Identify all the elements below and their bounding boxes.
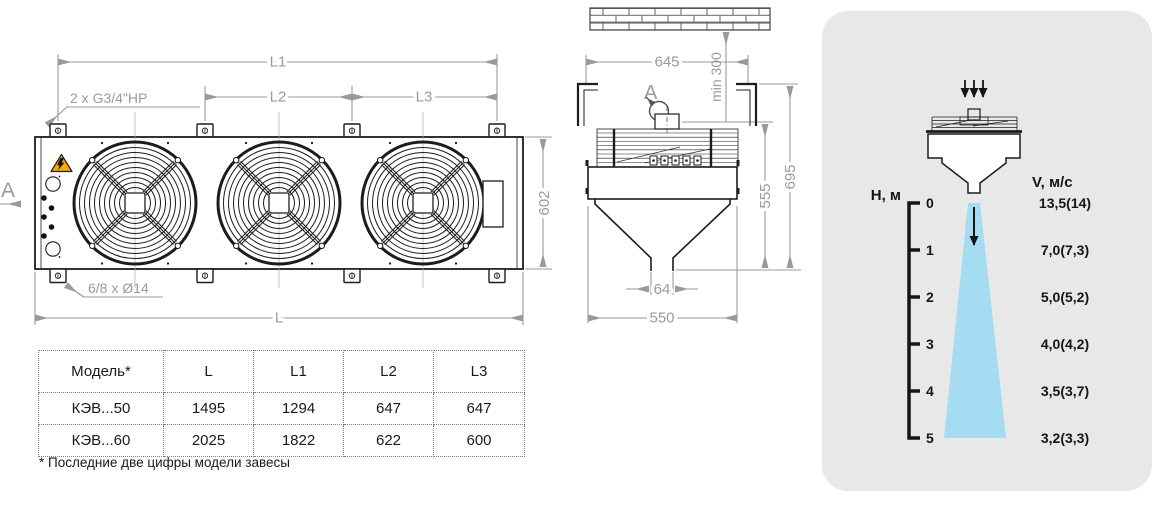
col-header-l3: L3 [434,351,525,393]
col-header-model: Модель* [39,351,164,393]
table-footnote: * Последние две цифры модели завесы [39,455,290,470]
dim-label-695: 695 [782,164,799,189]
front-view-drawing: L1 L2 L3 L 602 2 x G3/4"HP 6/8 x Ø14 A [0,0,570,345]
dim-label-min300: min 300 [708,52,724,102]
l2-cell: 647 [344,393,434,425]
l1-cell: 1822 [254,425,344,457]
h-tick-1: 1 [926,242,934,258]
section-a-label: A [1,179,15,202]
heat-exchanger [597,129,738,167]
h-tick-3: 3 [926,336,934,352]
dim-label-645: 645 [654,54,679,71]
velocity-0: 13,5(14) [1039,195,1091,211]
intake-arrows-icon [965,80,983,97]
table-header-row: Модель* L L1 L2 L3 [39,351,525,393]
table-row: КЭВ...50 1495 1294 647 647 [39,393,525,425]
velocity-1: 7,0(7,3) [1041,242,1089,258]
velocity-5: 3,2(3,3) [1041,430,1089,446]
unit-pictogram [926,109,1022,193]
l-cell: 1495 [164,393,254,425]
model-cell: КЭВ...60 [39,425,164,457]
dim-label-l3: L3 [416,89,433,106]
v-axis-label: V, м/с [1032,174,1073,191]
dim-label-550: 550 [649,310,674,327]
velocity-2: 5,0(5,2) [1041,289,1089,305]
velocity-values: 13,5(14) 7,0(7,3) 5,0(5,2) 4,0(4,2) 3,5(… [1039,195,1091,446]
table-row: КЭВ...60 2025 1822 622 600 [39,425,525,457]
page: L1 L2 L3 L 602 2 x G3/4"HP 6/8 x Ø14 A [0,0,1155,530]
top-mounting-brackets [50,124,505,138]
h-tick-4: 4 [926,383,934,399]
dim-label-l: L [275,310,283,327]
dim-label-64: 64 [654,281,671,298]
col-header-l1: L1 [254,351,344,393]
side-view-drawing: 645 min 300 555 695 64 550 A [570,0,820,345]
pipe-connection-note: 2 x G3/4"HP [70,90,147,106]
height-scale [909,203,920,438]
height-scale-numbers: 0 1 2 3 4 5 [926,195,934,446]
velocity-3: 4,0(4,2) [1041,336,1089,352]
l3-cell: 647 [434,393,525,425]
mounting-holes-note: 6/8 x Ø14 [88,280,149,296]
h-axis-label: H, м [871,187,901,204]
l3-cell: 600 [434,425,525,457]
h-tick-5: 5 [926,430,934,446]
casing-body [588,167,737,199]
discharge-funnel [595,199,730,271]
col-header-l: L [164,351,254,393]
airflow-diagram: 0 1 2 3 4 5 H, м V, м/с 13,5(14) 7,0(7,3… [822,11,1152,491]
l1-cell: 1294 [254,393,344,425]
model-cell: КЭВ...50 [39,393,164,425]
junction-box [483,181,503,227]
h-tick-2: 2 [926,289,934,305]
ceiling-brick-hatch [590,8,770,30]
dimensions-table: Модель* L L1 L2 L3 КЭВ...50 1495 1294 64… [38,350,525,457]
velocity-4: 3,5(3,7) [1041,383,1089,399]
airflow-panel: 0 1 2 3 4 5 H, м V, м/с 13,5(14) 7,0(7,3… [822,11,1152,491]
l-cell: 2025 [164,425,254,457]
dim-label-555: 555 [757,183,774,208]
view-a-label: A [644,82,658,104]
dim-label-602: 602 [536,190,553,215]
l2-cell: 622 [344,425,434,457]
dim-label-l1: L1 [270,54,287,71]
dim-label-l2: L2 [270,89,287,106]
col-header-l2: L2 [344,351,434,393]
h-tick-0: 0 [926,195,934,211]
